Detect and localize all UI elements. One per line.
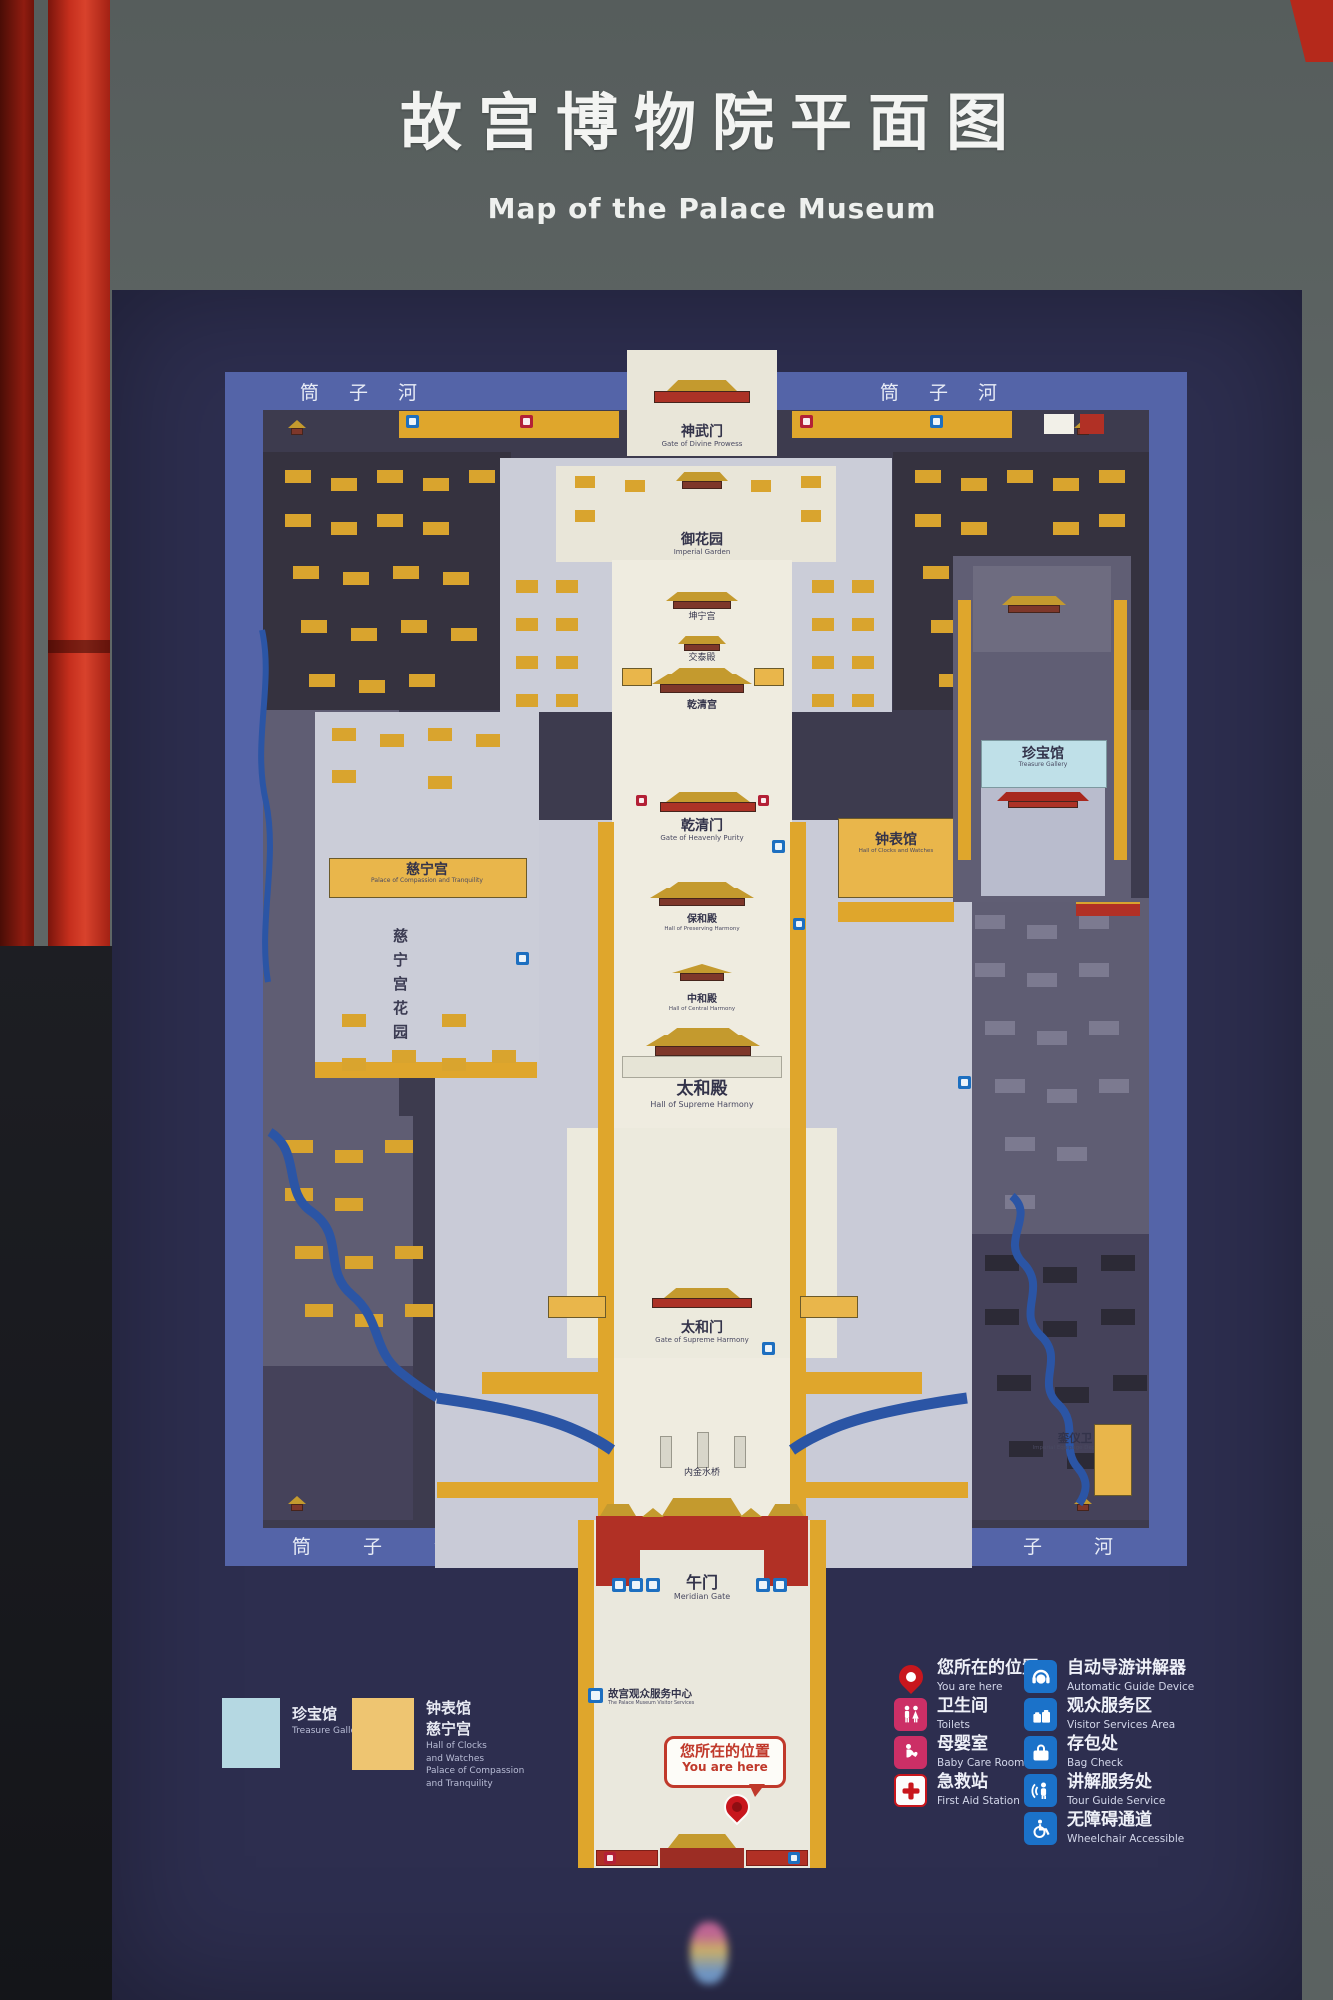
zhonghedian-building — [672, 964, 732, 981]
moat-label-top-right: 筒子河 — [880, 378, 1027, 405]
zhendu-gate — [548, 1296, 606, 1318]
you-are-here-en: You are here — [667, 1761, 783, 1773]
se-building-blocks — [985, 1255, 1019, 1271]
corner-tower-nw — [288, 420, 306, 435]
side-hall-west — [622, 668, 652, 686]
qianqinggong-building — [652, 668, 752, 693]
label-wumen: 午门 Meridian Gate — [652, 1574, 752, 1602]
sign-frame-post-inner — [48, 0, 110, 946]
label-neijinshuiqiao: 内金水桥 — [627, 1468, 777, 1478]
southwest-dark-zone — [263, 1366, 413, 1520]
label-baohedian: 保和殿 Hall of Preserving Harmony — [627, 914, 777, 932]
label-zhonghedian: 中和殿 Hall of Central Harmony — [627, 994, 777, 1012]
service-icon — [773, 1578, 787, 1592]
ne-building-blocks — [915, 470, 941, 483]
toilet-icon — [800, 415, 813, 428]
palace-museum-map-sign-photo: 故宫博物院平面图 Map of the Palace Museum 筒子河 筒子… — [0, 0, 1333, 2000]
service-icon — [793, 918, 805, 930]
north-route-red-box — [1080, 414, 1104, 434]
service-icon — [612, 1578, 626, 1592]
sw-building-blocks — [285, 1140, 313, 1153]
service-icon — [629, 1578, 643, 1592]
west-six-palaces — [516, 580, 538, 593]
service-icon — [788, 1852, 800, 1864]
sign-frame-post-outer — [0, 0, 34, 946]
you-are-here-zh: 您所在的位置 — [667, 1742, 783, 1761]
wheelchair-icon — [772, 840, 785, 853]
side-hall-east — [754, 668, 784, 686]
label-cininggong: 慈宁宫 Palace of Compassion and Tranquility — [329, 862, 525, 885]
wheelchair-icon — [958, 1076, 971, 1089]
jiaotaidian-building — [678, 636, 726, 651]
duanmen-base — [660, 1848, 744, 1868]
zhenbaoguan-route-west — [958, 600, 971, 860]
corner-tower-sw — [288, 1496, 306, 1511]
cining-buildings — [332, 728, 356, 741]
visitor-services-icon — [1029, 1703, 1053, 1727]
xihemen-route — [482, 1372, 600, 1394]
bridge — [734, 1436, 746, 1468]
service-icon — [516, 952, 529, 965]
nw-building-blocks — [285, 470, 311, 483]
south-wall-route-west — [437, 1482, 605, 1498]
qianqingmen-gate — [660, 792, 756, 812]
wumen-gate-west-wing — [596, 1516, 640, 1586]
wheelchair-icon — [762, 1342, 775, 1355]
south-wall-route-east — [800, 1482, 968, 1498]
blurred-sticker — [690, 1922, 728, 1984]
label-qianqinggong: 乾清宫 — [627, 700, 777, 712]
label-zhenbaoguan: 珍宝馆 Treasure Gallery — [981, 746, 1105, 769]
east-building-blocks — [975, 915, 1005, 929]
bridge — [697, 1432, 709, 1468]
label-taihemen: 太和门 Gate of Supreme Harmony — [627, 1320, 777, 1344]
zhaode-gate — [800, 1296, 858, 1318]
north-wall-route-west — [399, 411, 619, 438]
baby-care-icon — [899, 1741, 923, 1765]
sign-title-en: Map of the Palace Museum — [232, 192, 1192, 225]
corner-tower-se — [1074, 1496, 1092, 1511]
zhongbiaoguan-box — [838, 818, 956, 898]
shenwumen-gate-building — [654, 380, 750, 403]
legend-row-visitor-services: 观众服务区 Visitor Services Area — [1024, 1698, 1284, 1731]
north-route-info-box — [1044, 414, 1074, 434]
legend-row-bag-check: 存包处 Bag Check — [1024, 1736, 1284, 1769]
toilet-icon — [636, 795, 647, 806]
label-taihedian: 太和殿 Hall of Supreme Harmony — [627, 1080, 777, 1109]
toilet-icon — [604, 1852, 616, 1864]
duanmen-roof — [668, 1834, 736, 1848]
bag-check-icon — [1029, 1741, 1053, 1765]
label-jiaotaidian: 交泰殿 — [627, 653, 777, 663]
audio-guide-icon — [1029, 1665, 1053, 1689]
service-icon — [756, 1578, 770, 1592]
label-cining-garden: 慈宁宫花园 — [390, 928, 411, 1058]
wumen-strip-east-wall — [810, 1520, 826, 1868]
zhenbaoguan-route-east — [1114, 600, 1127, 860]
bridge — [660, 1436, 672, 1468]
location-pin-icon — [894, 1660, 928, 1694]
garden-pavilions — [575, 476, 595, 488]
label-qianqingmen: 乾清门 Gate of Heavenly Purity — [627, 818, 777, 842]
wheelchair-icon — [1029, 1817, 1053, 1841]
label-visitor-center: 故宫观众服务中心 The Palace Museum Visitor Servi… — [608, 1686, 748, 1706]
service-icon — [406, 415, 419, 428]
legend-row-audio-guide: 自动导游讲解器 Automatic Guide Device — [1024, 1660, 1284, 1693]
toilets-icon — [899, 1703, 923, 1727]
toilet-icon — [520, 415, 533, 428]
service-icon — [930, 415, 943, 428]
floor-shadow-left — [0, 946, 112, 2000]
east-gate-route — [804, 1372, 922, 1394]
ningshoumen-gate — [997, 792, 1089, 808]
garden-hall — [676, 472, 728, 489]
east-outer-zone — [955, 898, 1149, 1234]
zhongbiaoguan-route — [838, 902, 954, 922]
axis-route-west — [598, 822, 614, 1566]
baohedian-building — [650, 882, 754, 906]
north-wall-route-east — [792, 411, 1012, 438]
label-shenwumen: 神武门 Gate of Divine Prowess — [627, 424, 777, 448]
taihemen-gate — [652, 1288, 752, 1308]
toilet-icon — [758, 795, 769, 806]
east-six-palaces — [812, 580, 834, 593]
label-zhongbiaoguan: 钟表馆 Hall of Clocks and Watches — [838, 832, 954, 854]
legend-row-tour-guide: 讲解服务处 Tour Guide Service — [1024, 1774, 1284, 1807]
legend-swatch-clocks-label: 钟表馆 慈宁宫 Hall of Clocks and Watches Palac… — [426, 1698, 576, 1790]
moat-label-top-left: 筒子河 — [300, 378, 447, 405]
label-kunninggong: 坤宁宫 — [627, 612, 777, 622]
first-aid-icon — [899, 1779, 923, 1803]
kunninggong-building — [666, 592, 738, 609]
nine-dragon-screen — [1076, 902, 1140, 916]
tour-guide-icon — [1029, 1779, 1053, 1803]
taihedian-building — [646, 1028, 760, 1056]
legend-row-wheelchair: 无障碍通道 Wheelchair Accessible — [1024, 1812, 1284, 1845]
wumen-gate-east-wing — [764, 1516, 808, 1586]
northwest-quarters — [263, 452, 511, 710]
visitor-center-icon — [588, 1688, 603, 1703]
moat-label-bottom-right: 筒子河 — [952, 1532, 1165, 1559]
wumen-roof-center — [662, 1498, 742, 1516]
huangjidian-building — [1002, 596, 1066, 613]
post-joint — [48, 640, 110, 653]
sign-header: 故宫博物院平面图 Map of the Palace Museum — [112, 0, 1333, 290]
legend-swatch-clocks — [352, 1698, 414, 1770]
sign-title-zh: 故宫博物院平面图 — [232, 72, 1192, 162]
legend-swatch-treasure — [222, 1698, 280, 1768]
label-yuhuayuan: 御花园 Imperial Garden — [627, 532, 777, 556]
cininggong-route — [315, 1062, 537, 1078]
southwest-zone — [263, 1116, 413, 1366]
taihedian-terrace — [622, 1056, 782, 1078]
you-are-here-callout: 您所在的位置 You are here — [664, 1736, 786, 1788]
luanyiwei-building — [1094, 1424, 1132, 1496]
axis-route-east — [790, 822, 806, 1566]
